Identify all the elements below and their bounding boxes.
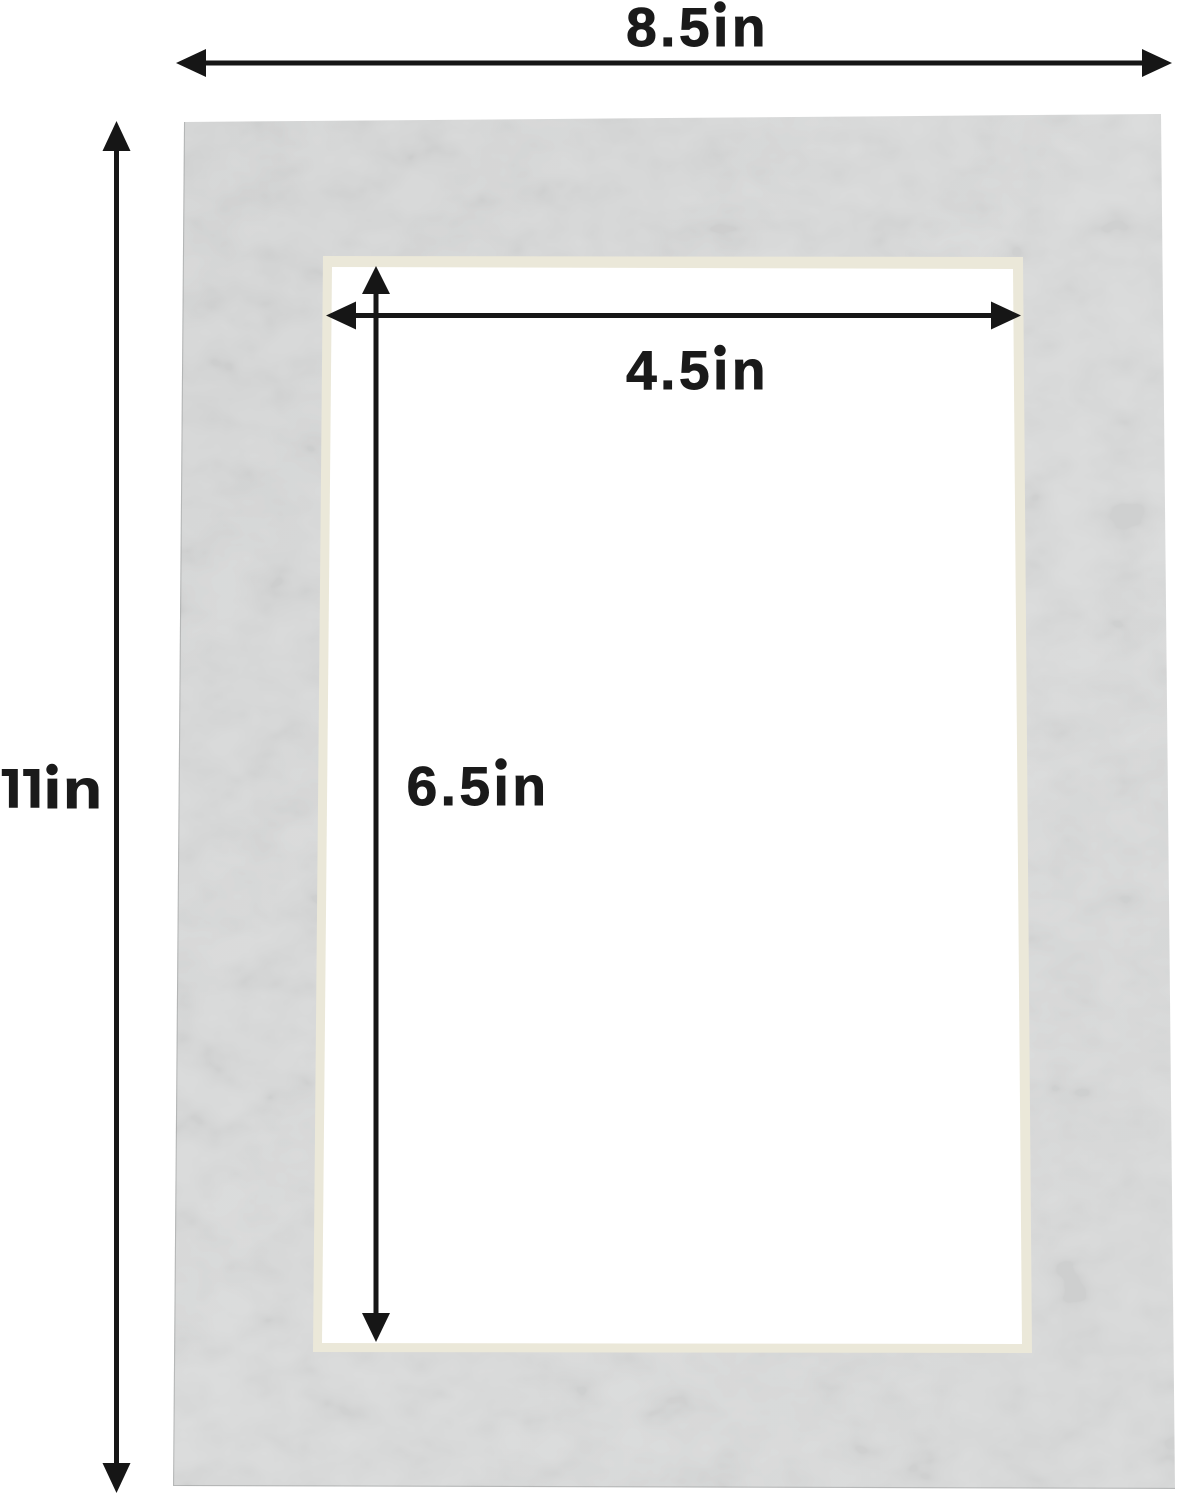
svg-text:4.5ın: 4.5ın: [626, 339, 769, 401]
svg-text:8.5ın: 8.5ın: [626, 0, 769, 58]
svg-text:6.5ın: 6.5ın: [407, 755, 550, 817]
